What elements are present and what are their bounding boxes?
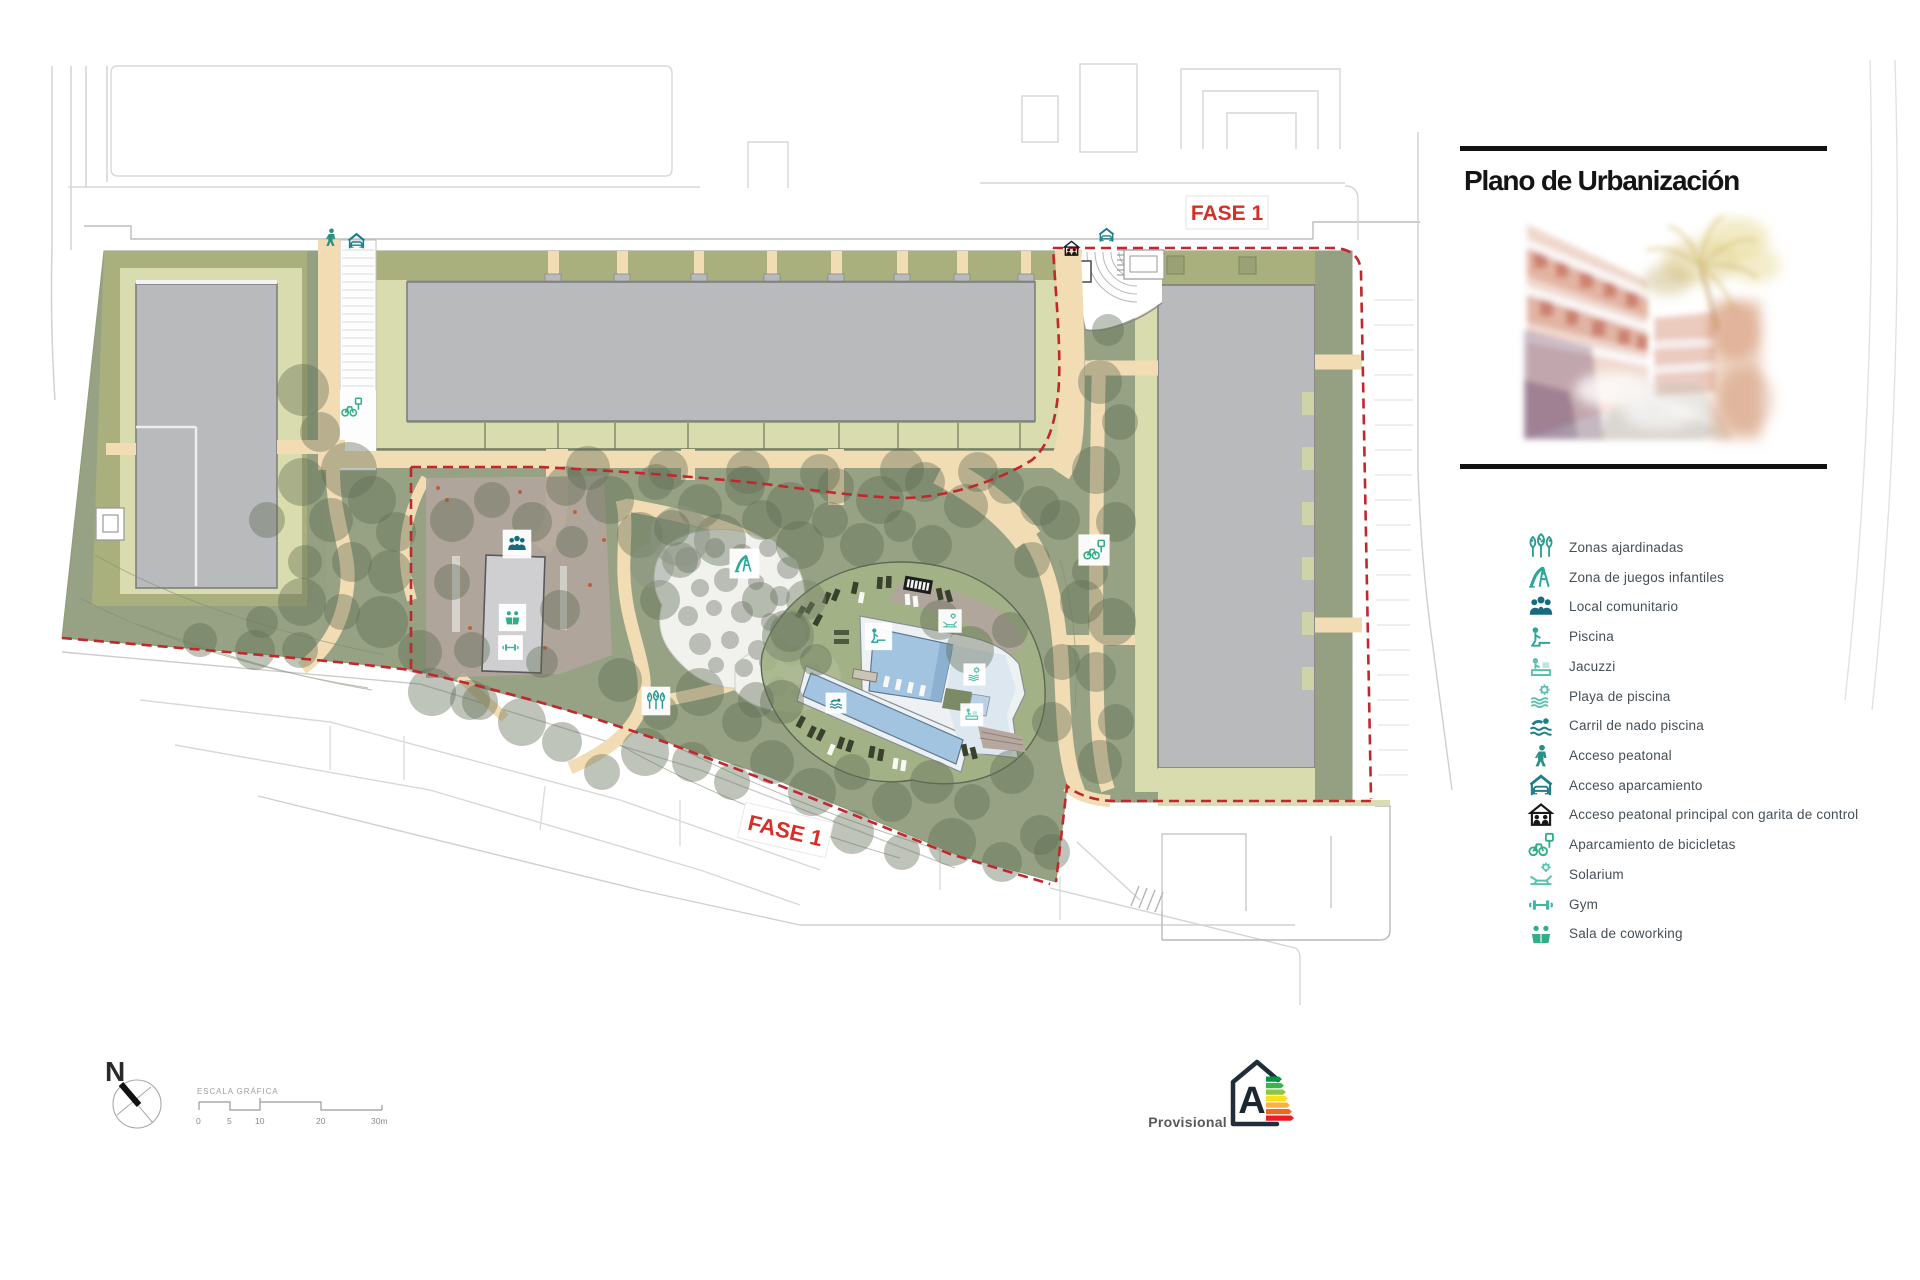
- svg-text:Solarium: Solarium: [1569, 867, 1624, 882]
- svg-text:N: N: [105, 1056, 125, 1087]
- svg-text:Acceso aparcamiento: Acceso aparcamiento: [1569, 778, 1703, 793]
- svg-text:Acceso peatonal principal con: Acceso peatonal principal con garita de …: [1569, 807, 1858, 822]
- svg-text:Zona de juegos infantiles: Zona de juegos infantiles: [1569, 570, 1724, 585]
- svg-text:Gym: Gym: [1569, 897, 1598, 912]
- svg-text:20: 20: [316, 1116, 326, 1126]
- svg-text:30m: 30m: [371, 1116, 388, 1126]
- svg-text:10: 10: [255, 1116, 265, 1126]
- svg-text:Zonas ajardinadas: Zonas ajardinadas: [1569, 540, 1684, 555]
- svg-text:FASE 1: FASE 1: [1191, 202, 1264, 225]
- svg-text:Playa de piscina: Playa de piscina: [1569, 689, 1671, 704]
- svg-text:Jacuzzi: Jacuzzi: [1569, 659, 1615, 674]
- svg-text:Provisional: Provisional: [1148, 1114, 1227, 1130]
- svg-text:ESCALA GRÁFICA: ESCALA GRÁFICA: [197, 1087, 279, 1096]
- svg-text:0: 0: [196, 1116, 201, 1126]
- svg-text:Carril de nado piscina: Carril de nado piscina: [1569, 718, 1704, 733]
- svg-text:5: 5: [227, 1116, 232, 1126]
- svg-text:Local comunitario: Local comunitario: [1569, 599, 1678, 614]
- svg-text:A: A: [1238, 1080, 1265, 1122]
- svg-text:Acceso peatonal: Acceso peatonal: [1569, 748, 1672, 763]
- svg-text:Plano de Urbanización: Plano de Urbanización: [1464, 165, 1739, 196]
- svg-text:Piscina: Piscina: [1569, 629, 1614, 644]
- svg-text:Sala de coworking: Sala de coworking: [1569, 926, 1683, 941]
- svg-text:Aparcamiento de bicicletas: Aparcamiento de bicicletas: [1569, 837, 1736, 852]
